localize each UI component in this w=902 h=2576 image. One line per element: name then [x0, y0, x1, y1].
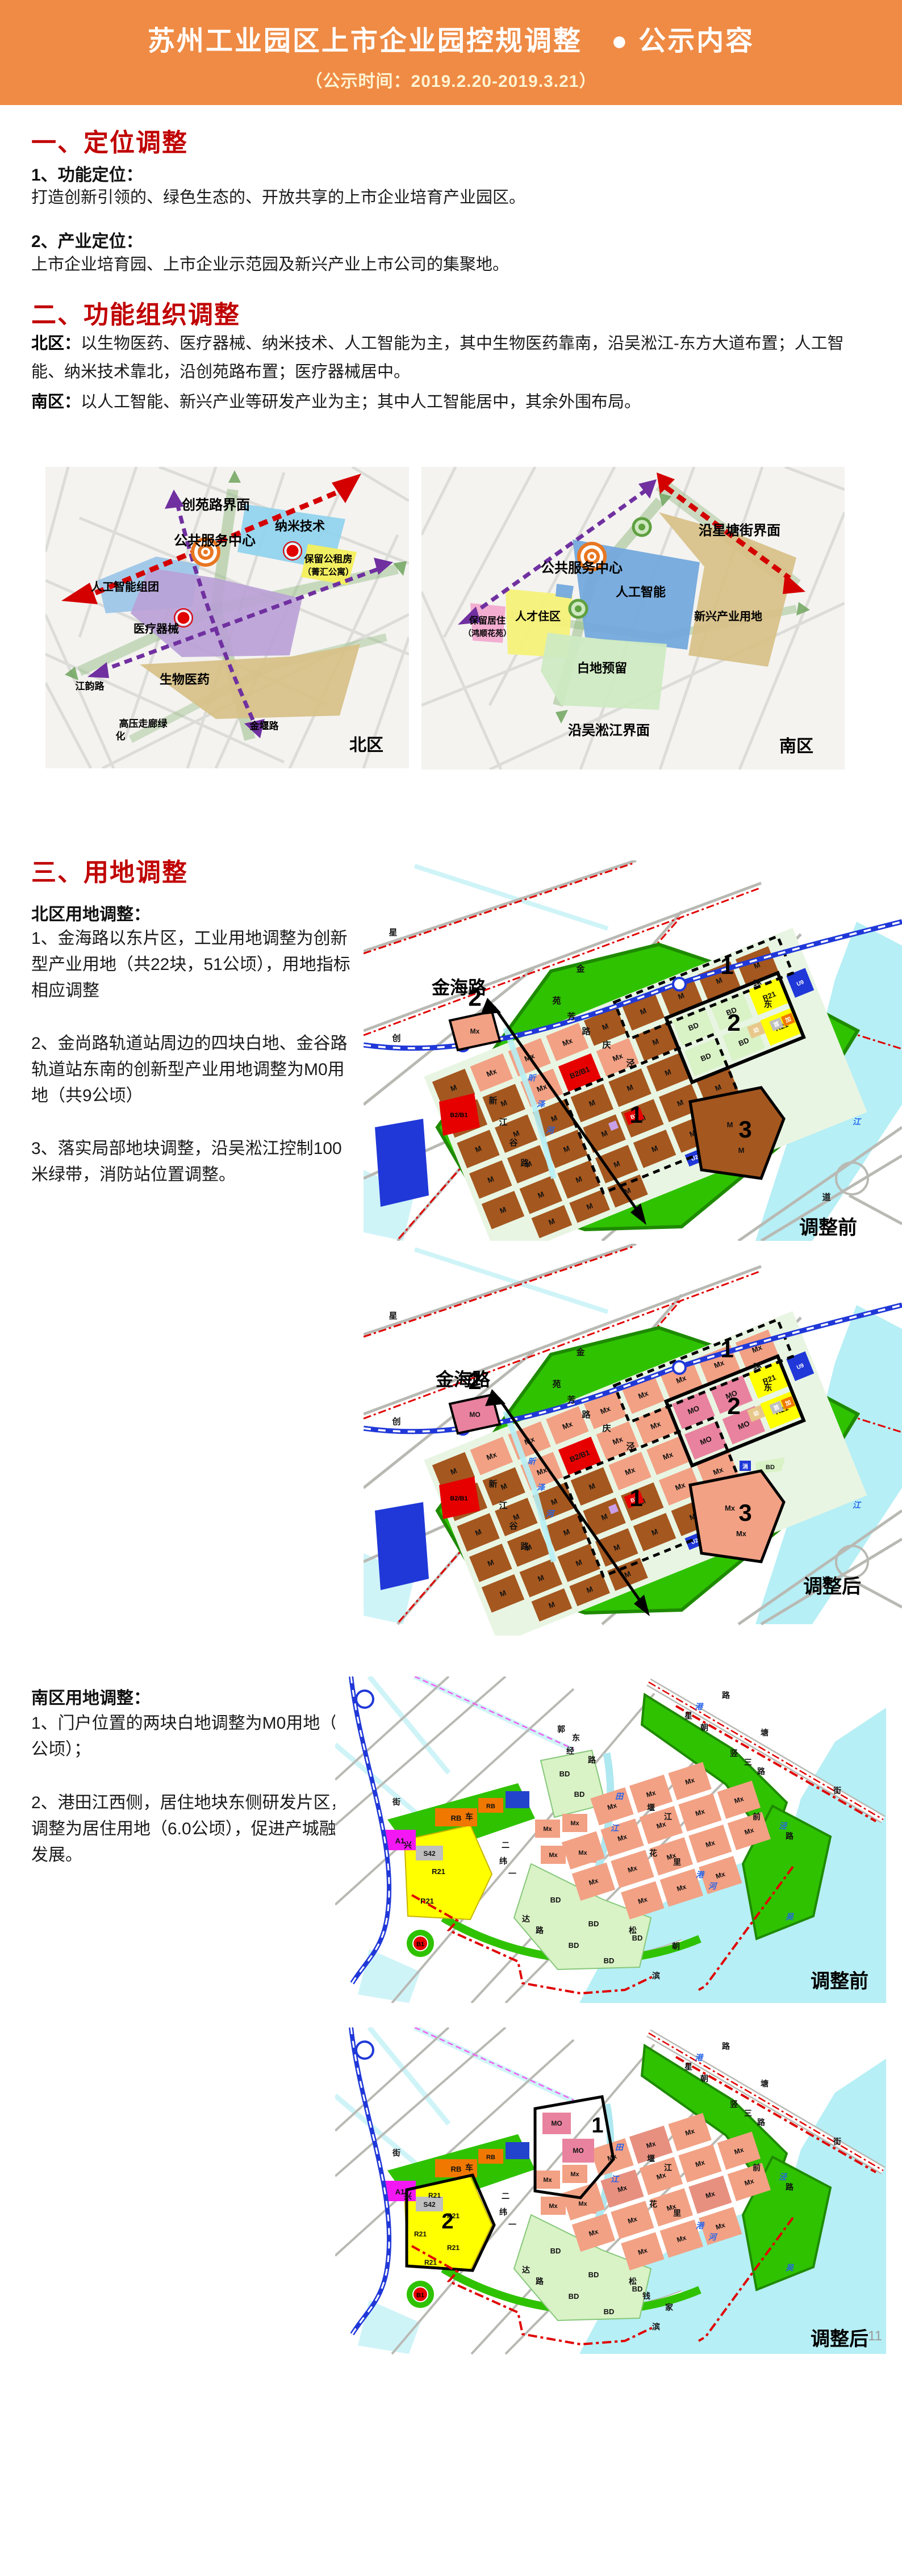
map-label: BD	[569, 2292, 579, 2301]
north-landuse-map-after: MMxMxMxMxMxMxMxMxMMMxB2/B1MxMxMOMOR21MMM…	[364, 1244, 902, 1636]
map-shape	[506, 2142, 529, 2159]
map-label: S42	[423, 2201, 436, 2209]
map-label: 江	[664, 2163, 672, 2172]
map-label: 泾	[626, 1058, 634, 1068]
map-label: 纳米技术	[275, 519, 325, 533]
page-subtitle: （公示时间：2019.2.20-2019.3.21）	[0, 67, 902, 92]
map-label: 田	[615, 1792, 624, 1801]
south-adjust-item-1: 1、门户位置的两块白地调整为M0用地（3.4公顷）；	[31, 1711, 364, 1763]
map-label: 滨	[652, 2322, 660, 2331]
map-label: 花	[649, 2199, 657, 2209]
map-label: 保留居住	[469, 615, 506, 626]
map-label: 苑	[552, 1379, 561, 1389]
map-label: 吴	[786, 2263, 794, 2272]
map-label: 塘	[761, 1728, 769, 1737]
map-label: 吴	[786, 1912, 794, 1921]
map-label: 金堰路	[249, 720, 279, 731]
map-label: 竖	[730, 1749, 738, 1758]
map-label: 一	[508, 1869, 516, 1878]
map-label: RB	[451, 1814, 462, 1822]
map-shape	[590, 554, 594, 559]
map-label: 新兴产业用地	[694, 609, 762, 623]
map-label: 街	[833, 1786, 841, 1795]
landuse-block-label: Mx	[578, 1850, 587, 1856]
map-label: R21	[414, 2230, 427, 2238]
map-label: 花	[649, 1849, 657, 1858]
map-label: 路	[588, 1755, 596, 1764]
map-label: 公共服务中心	[541, 560, 623, 576]
map-label: 三	[744, 2109, 752, 2118]
map-label: A1	[395, 2188, 405, 2196]
map-label: M	[738, 1146, 745, 1155]
map-label: 南区	[779, 737, 813, 756]
map-label: 东	[763, 1382, 772, 1392]
map-label: 路	[520, 1158, 529, 1168]
page-title: 苏州工业园区上市企业园控规调整 ● 公示内容	[0, 18, 902, 58]
map-label: BD	[588, 1920, 599, 1928]
map-label: 纬	[499, 1856, 507, 1866]
map-shape	[673, 1361, 686, 1374]
map-label: 调整后	[811, 2328, 868, 2350]
map-label: 路	[786, 2182, 794, 2192]
map-label: 路	[536, 1926, 544, 1935]
map-label: （菁汇公寓）	[303, 567, 354, 577]
north-adjust-item-2: 2、金尚路轨道站周边的四块白地、金谷路轨道站东南的创新型产业用地调整为M0用地（…	[31, 1031, 355, 1109]
map-label: 星	[684, 1711, 692, 1720]
map-label: RB	[486, 2154, 495, 2161]
map-label: BD	[632, 1934, 643, 1942]
map-label: A1	[395, 1837, 405, 1845]
map-label: 创	[391, 1416, 400, 1427]
map-shape	[673, 978, 686, 990]
south-district-function-map: 沿星塘街界面公共服务中心人工智能新兴产业用地人才住区保留居住（鸿顺花苑）白地预留…	[421, 467, 845, 770]
map-label: 谷	[509, 1521, 518, 1531]
map-label: 兴	[404, 2192, 412, 2201]
section2-heading: 二、功能组织调整	[31, 294, 240, 331]
map-label: 街	[392, 1797, 400, 1806]
section3-heading: 三、用地调整	[31, 852, 188, 888]
map-label: 前	[753, 2163, 761, 2172]
map-label: 3	[738, 1116, 751, 1143]
section2-south-paragraph: 南区：以人工智能、新兴产业等研发产业为主；其中人工智能居中，其余外围布局。	[31, 388, 875, 416]
map-label: 街	[833, 2137, 841, 2146]
map-label: 江	[853, 1500, 862, 1509]
map-label: 星	[389, 1311, 397, 1321]
map-label: 前	[753, 1812, 761, 1821]
map-label: 环	[753, 1362, 762, 1372]
map-label: 创	[391, 1033, 400, 1043]
map-label: 路	[520, 1541, 529, 1552]
map-shape	[556, 584, 574, 599]
map-label: 保留公租房	[304, 553, 353, 564]
map-label: 经	[566, 1746, 574, 1755]
map-label: 达	[522, 1914, 530, 1923]
map-label: 纬	[499, 2207, 507, 2217]
map-label: 沿吴淞江界面	[568, 723, 650, 738]
map-label: 1	[629, 1484, 642, 1511]
map-label: BD	[559, 1770, 570, 1778]
north-adjust-item-3: 3、落实局部地块调整，沿吴淞江控制100米绿带，消防站位置调整。	[31, 1136, 355, 1188]
section2-north-paragraph: 北区：以生物医药、医疗器械、纳米技术、人工智能为主，其中生物医药靠南，沿吴淞江-…	[31, 329, 875, 386]
map-label: 滨	[652, 1971, 660, 1980]
map-label: 路	[757, 1767, 766, 1776]
map-label: 化	[116, 730, 126, 742]
north-district-label: 北区：	[31, 334, 81, 353]
map-label: MO	[573, 2147, 583, 2155]
map-label: 公共服务中心	[174, 533, 256, 549]
map-label: 朝	[700, 1723, 708, 1732]
map-label: 金	[575, 964, 585, 974]
landuse-block-label: Mx	[549, 1852, 558, 1859]
map-label: 2	[441, 2210, 453, 2234]
section3-south-title: 南区用地调整：	[31, 1684, 151, 1709]
north-district-function-map: 创苑路界面纳米技术人工智能组团医疗器械生物医药公共服务中心保留公租房（菁汇公寓）…	[45, 467, 409, 768]
map-label: B2/B1	[450, 1112, 467, 1119]
map-label: R21	[447, 2244, 460, 2252]
map-label: M	[727, 1120, 733, 1129]
map-label: 泽	[537, 1483, 546, 1492]
map-label: 星	[389, 928, 397, 938]
map-label: 泾	[779, 1821, 788, 1830]
map-label: 江	[611, 2174, 620, 2184]
map-label: 2	[468, 984, 481, 1011]
map-label: B1	[416, 1941, 424, 1948]
map-label: MO	[551, 2119, 562, 2127]
map-label: 竖	[730, 2100, 738, 2109]
map-label: 街	[392, 2148, 400, 2157]
section1-item1-title: 1、功能定位：	[31, 161, 143, 186]
map-label: Mx	[736, 1529, 747, 1538]
map-label: 北区	[349, 736, 383, 755]
map-label: 星	[684, 2062, 692, 2071]
map-label: BD	[604, 2307, 615, 2316]
map-label: 1	[720, 952, 733, 979]
south-district-label: 南区：	[31, 393, 81, 411]
map-label: MO	[469, 1411, 480, 1419]
map-label: 堰	[647, 2154, 655, 2163]
map-label: 路	[536, 2277, 544, 2286]
map-label: 芳	[567, 1395, 575, 1405]
map-label: 人才住区	[515, 609, 561, 623]
map-label: 路	[722, 2042, 730, 2051]
map-label: 车	[465, 2163, 473, 2172]
map-label: Mx	[470, 1027, 480, 1035]
map-label: 环	[753, 979, 762, 989]
map-label: 三	[744, 1758, 752, 1767]
landuse-block-label: Mx	[570, 2171, 579, 2178]
notice-page: 苏州工业园区上市企业园控规调整 ● 公示内容 （公示时间：2019.2.20-2…	[0, 0, 902, 2576]
map-label: 庆	[602, 1040, 611, 1050]
map-label: BD	[550, 2247, 561, 2255]
map-label: R21	[420, 1897, 434, 1905]
map-shape	[203, 550, 208, 554]
map-label: BD	[604, 1956, 615, 1965]
map-label: B2/B1	[450, 1495, 467, 1502]
section1-item1-body: 打造创新引领的、绿色生态的、开放共享的上市企业培育产业园区。	[31, 185, 872, 211]
map-label: 路	[722, 1691, 730, 1700]
map-label: （鸿顺花苑）	[463, 629, 511, 638]
map-label: 东	[572, 1733, 580, 1742]
map-label: 东	[763, 999, 772, 1009]
map-label: 江	[611, 1824, 620, 1833]
map-label: Mx	[725, 1504, 736, 1512]
map-label: 路	[582, 1026, 591, 1036]
north-district-body: 以生物医药、医疗器械、纳米技术、人工智能为主，其中生物医药靠南，沿吴淞江-东方大…	[31, 334, 844, 381]
map-label: 路	[582, 1410, 591, 1420]
map-label: 白地预留	[577, 661, 627, 675]
map-label: 金海路	[435, 1369, 491, 1390]
section1-heading: 一、定位调整	[31, 122, 188, 158]
map-label: 泾	[779, 2172, 788, 2181]
south-district-body: 以人工智能、新兴产业等研发产业为主；其中人工智能居中，其余外围布局。	[81, 393, 641, 411]
map-label: 生物医药	[160, 672, 210, 687]
map-label: 泽	[537, 1099, 546, 1109]
page-number: 11	[868, 2328, 882, 2344]
map-label: 创苑路界面	[181, 497, 250, 513]
map-label: R21	[428, 2192, 441, 2199]
north-landuse-map-before: MMxMxMxMMMMMMMMxB2/B1MxMBDBDR21MMMMMMBDB…	[364, 860, 902, 1241]
map-label: 谷	[509, 1138, 518, 1148]
south-adjust-item-2: 2、港田江西侧，居住地块东侧研发片区，调整为居住用地（6.0公顷），促进产城融合…	[31, 1790, 364, 1868]
map-shape	[375, 1502, 429, 1590]
map-label: 达	[522, 2265, 530, 2274]
map-label: 调整后	[803, 1576, 861, 1598]
landuse-block-label: Mx	[549, 2203, 558, 2210]
map-label: 兴	[404, 1841, 412, 1850]
map-label: 江	[664, 1812, 672, 1821]
landuse-block-label: Mx	[570, 1820, 579, 1827]
map-label: 1	[629, 1101, 642, 1128]
map-label: BD	[632, 2285, 643, 2293]
map-label: 2	[727, 1392, 740, 1419]
map-label: 朝	[700, 2074, 708, 2083]
section3-north-title: 北区用地调整：	[31, 900, 151, 925]
map-label: 2	[727, 1009, 740, 1036]
map-label: 庆	[602, 1423, 611, 1433]
section1-item2-title: 2、产业定位：	[31, 227, 143, 252]
map-label: S42	[423, 1850, 436, 1858]
map-label: 消	[742, 1463, 748, 1470]
map-label: 江	[499, 1117, 507, 1127]
map-shape	[356, 2042, 373, 2059]
north-adjust-item-1: 1、金海路以东片区，工业用地调整为创新型产业用地（共22块，51公顷），用地指标…	[31, 926, 355, 1004]
map-label: 江	[499, 1500, 507, 1511]
map-label: 里	[673, 1858, 681, 1867]
south-landuse-map-before: BDBDBDBDBDBDBDMxMxMxMxMxMxMxMxMxMxMxMxMx…	[335, 1676, 886, 2003]
south-landuse-map-after: BDBDBDBDBDMxMxMxMxMxMxMxMxMxMxMxMxMxMxMx…	[335, 2027, 886, 2360]
map-label: 泾	[626, 1441, 634, 1452]
map-label: 一	[508, 2220, 516, 2229]
map-label: 高压走廊绿	[119, 718, 168, 729]
map-label: 芳	[567, 1011, 575, 1022]
map-label: 医疗器械	[133, 622, 179, 635]
map-label: 里	[673, 2209, 681, 2218]
map-label: 3	[738, 1499, 751, 1526]
map-label: 人工智能组团	[91, 580, 159, 593]
map-shape	[286, 544, 299, 558]
map-label: 堰	[647, 1803, 655, 1812]
map-label: BD	[550, 1896, 561, 1904]
map-label: BD	[588, 2270, 599, 2279]
landuse-block-label: Mx	[543, 2177, 552, 2184]
map-label: 田	[615, 2143, 624, 2152]
section1-item2-body: 上市企业培育园、上市企业示范园及新兴产业上市公司的集聚地。	[31, 252, 872, 278]
map-label: 家	[665, 2303, 674, 2312]
map-label: RB	[451, 2165, 462, 2173]
map-shape	[506, 1791, 529, 1808]
map-label: BD	[766, 1464, 775, 1471]
map-label: 1	[591, 2114, 603, 2138]
map-label: 金	[575, 1347, 585, 1357]
map-shape	[356, 1691, 373, 1708]
map-label: 松	[629, 1926, 637, 1935]
map-label: 1	[720, 1336, 733, 1362]
map-label: 朝	[672, 1942, 680, 1951]
map-label: 道	[822, 1192, 830, 1202]
map-label: 路	[786, 1831, 794, 1841]
map-label: 郭	[557, 1725, 565, 1734]
map-label: 调整前	[799, 1217, 857, 1239]
map-shape	[638, 524, 645, 530]
map-label: 苑	[552, 996, 561, 1006]
map-label: 二	[502, 2192, 510, 2201]
map-label: RB	[486, 1803, 495, 1810]
map-label: 路	[757, 2118, 766, 2127]
map-label: 2	[468, 1368, 481, 1394]
map-label: 松	[629, 2277, 637, 2286]
map-label: 塘	[761, 2079, 769, 2088]
map-label: 新	[488, 1479, 497, 1489]
map-shape	[375, 1119, 429, 1207]
map-label: B1	[416, 2292, 424, 2299]
map-label: R21	[432, 1867, 445, 1876]
map-shape	[575, 605, 582, 612]
map-label: 钱	[642, 2291, 650, 2301]
map-label: BD	[569, 1941, 579, 1950]
map-label: 人工智能	[616, 585, 666, 599]
map-label: 新	[488, 1095, 497, 1106]
map-label: 调整前	[811, 1971, 868, 1992]
map-label: 江	[853, 1117, 862, 1126]
map-label: 沿星塘街界面	[699, 522, 780, 538]
map-label: BD	[574, 1790, 585, 1799]
landuse-block-label: Mx	[578, 2201, 587, 2207]
map-label: 车	[465, 1812, 473, 1821]
landuse-block-label: Mx	[543, 1826, 552, 1833]
map-label: 江韵路	[76, 680, 105, 692]
map-label: 二	[502, 1841, 510, 1850]
